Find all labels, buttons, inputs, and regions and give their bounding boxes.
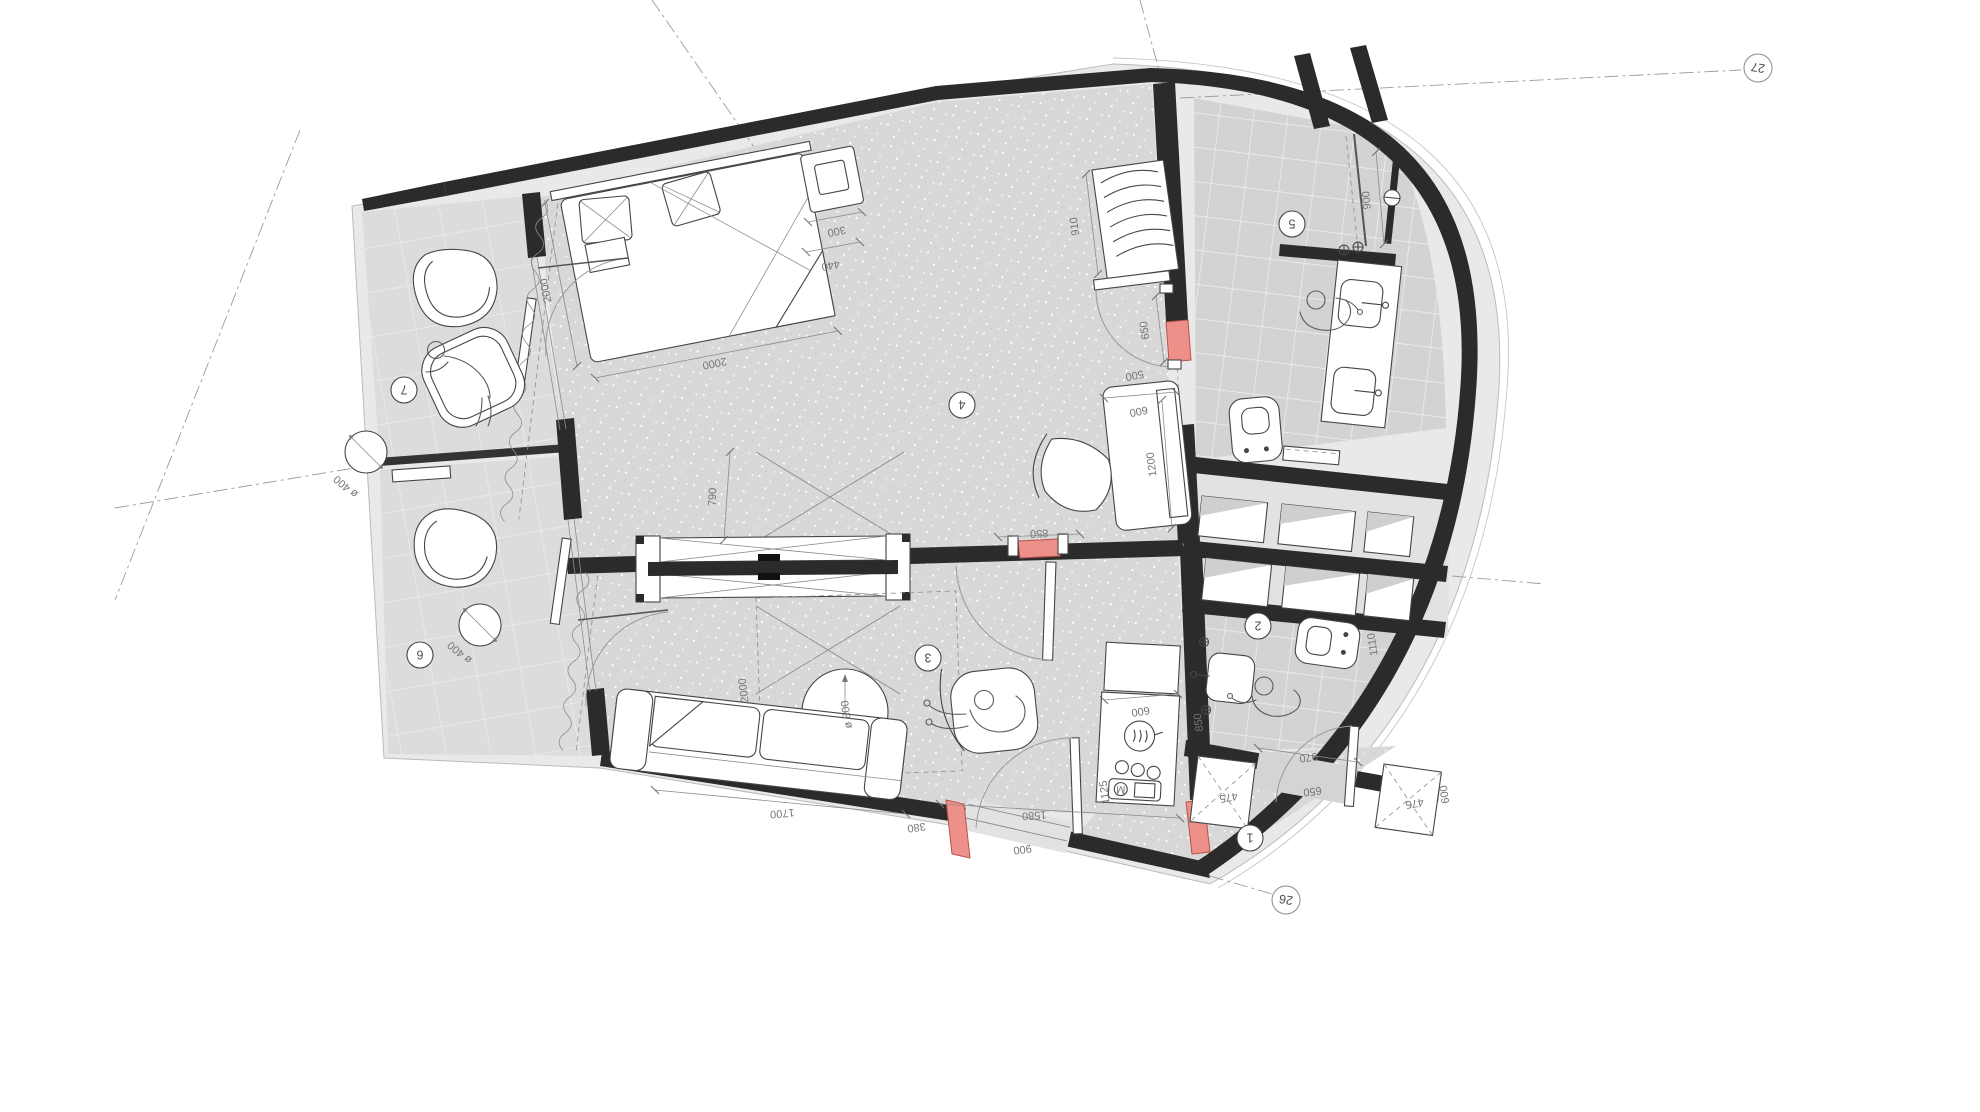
bed-pillow-left — [579, 196, 633, 244]
room-bubble-bath-lower: 2 — [1245, 613, 1271, 639]
dim-bath-lower-door-clear: 970 — [1298, 750, 1318, 764]
dim-entry-opening: 900 — [1012, 842, 1032, 856]
grid-bubble-27: 27 — [1744, 54, 1772, 82]
dim-bath-lower-door-leaf: 650 — [1302, 784, 1322, 798]
gridline-left-radial — [115, 130, 300, 600]
room-bubble-bedroom: 4 — [949, 392, 975, 418]
toilet-upper — [1228, 396, 1283, 464]
grid-bubble-26: 26 — [1272, 886, 1300, 914]
dim-entry-segment: 380 — [906, 820, 926, 834]
wardrobe — [1092, 160, 1179, 279]
floor-plan-page: M — [0, 0, 1980, 1112]
red-infill-party-door — [1018, 539, 1060, 558]
red-infill-bath-upper-door — [1166, 320, 1191, 362]
svg-text:26: 26 — [1278, 891, 1294, 907]
dim-sofa: 1700 — [770, 806, 795, 820]
dim-corridor-side: 850 — [1192, 713, 1206, 733]
svg-text:4: 4 — [958, 398, 965, 412]
room-bubble-bath-upper: 5 — [1279, 211, 1305, 237]
floor-plan-drawing: M — [0, 0, 1980, 1112]
svg-text:2: 2 — [1254, 619, 1261, 633]
dim-wardrobe: 910 — [1068, 217, 1082, 237]
dim-bath-door-opening: 650 — [1138, 321, 1152, 341]
kitchen-cabinet — [1104, 642, 1180, 694]
svg-text:5: 5 — [1288, 217, 1295, 231]
dim-joinery: 790 — [707, 488, 720, 507]
dim-shower: 900 — [1360, 191, 1374, 210]
vanity-basin-1 — [1337, 279, 1384, 329]
room-bubble-corridor: 1 — [1237, 825, 1263, 851]
gridline-to-26 — [1210, 876, 1272, 894]
gridline-right-ext — [1452, 576, 1545, 584]
party-wall-joinery — [636, 534, 910, 602]
svg-text:3: 3 — [924, 651, 931, 665]
svg-text:27: 27 — [1750, 59, 1766, 75]
vanity-basin-2 — [1330, 366, 1377, 416]
dim-niche-depth: 600 — [1438, 784, 1452, 804]
toilet-lower — [1294, 616, 1362, 670]
brand-logo: M — [1116, 783, 1126, 795]
room-bubble-living: 3 — [915, 645, 941, 671]
svg-text:7: 7 — [400, 383, 407, 397]
room-bubble-balcony-lower: 6 — [407, 642, 433, 668]
neighbor-wall-b — [1350, 45, 1388, 123]
svg-text:1: 1 — [1246, 831, 1253, 845]
svg-text:6: 6 — [416, 648, 423, 662]
dim-party-door: 850 — [1030, 527, 1049, 540]
nightstand — [800, 146, 864, 213]
dim-kitchen-run: 1580 — [1022, 808, 1047, 822]
dim-balcony-table-upper: ø 400 — [331, 473, 360, 500]
room-bubble-balcony-upper: 7 — [391, 377, 417, 403]
